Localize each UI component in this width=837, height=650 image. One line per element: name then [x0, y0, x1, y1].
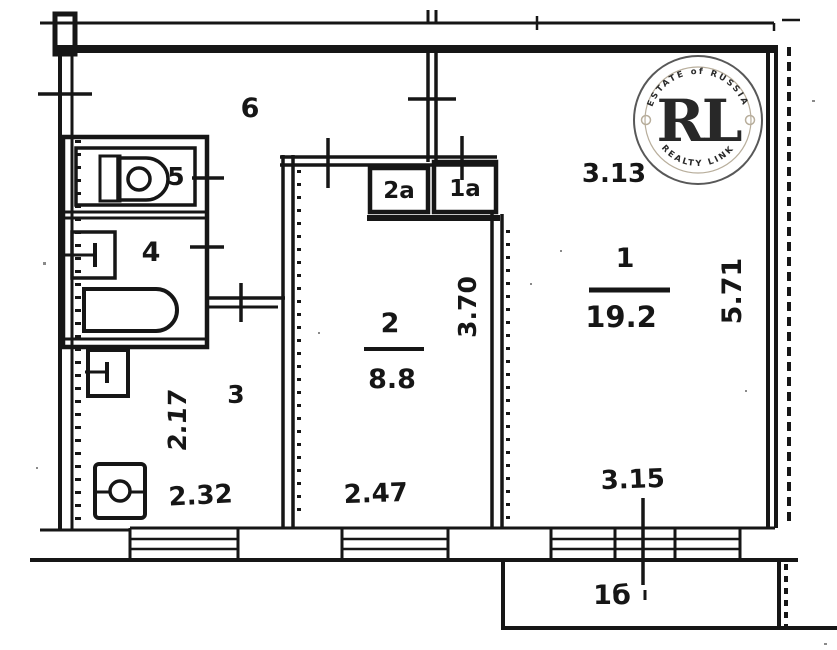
dim-room2-bottom: 2.47 [343, 478, 408, 510]
balcony-label: 1б [593, 580, 631, 611]
dim-kitchen-left: 2.17 [163, 388, 192, 453]
stove-burner-icon [110, 481, 130, 501]
closet-2a-label: 2а [383, 178, 415, 204]
room1-area: 19.2 [585, 300, 657, 334]
dim-room2-right: 3.70 [453, 276, 482, 338]
room1-number: 1 [616, 243, 635, 274]
bathroom-number: 4 [142, 237, 161, 268]
watermark-monogram: RL [657, 87, 742, 155]
room2-number: 2 [381, 308, 400, 339]
floor-plan-canvas: 6 5 4 3 2а 1а 2 8.8 1 19.2 1б 3.13 5.71 … [0, 0, 837, 650]
watermark-logo: ESTATE of RUSSIA REALTY LINK RL [634, 56, 762, 184]
wc-number: 5 [167, 162, 184, 191]
dim-room1-right: 5.71 [717, 258, 748, 325]
hall-number: 6 [241, 93, 260, 124]
scanned-floor-plan: 6 5 4 3 2а 1а 2 8.8 1 19.2 1б 3.13 5.71 … [0, 0, 837, 650]
dim-room1-top: 3.13 [582, 159, 646, 189]
closet-1a-label: 1а [449, 176, 481, 202]
dim-room1-bottom: 3.15 [600, 464, 665, 496]
dim-kitchen-bottom: 2.32 [168, 479, 234, 512]
top-main-wall [57, 45, 774, 53]
kitchen-number: 3 [227, 380, 244, 409]
room2-area: 8.8 [368, 364, 416, 395]
